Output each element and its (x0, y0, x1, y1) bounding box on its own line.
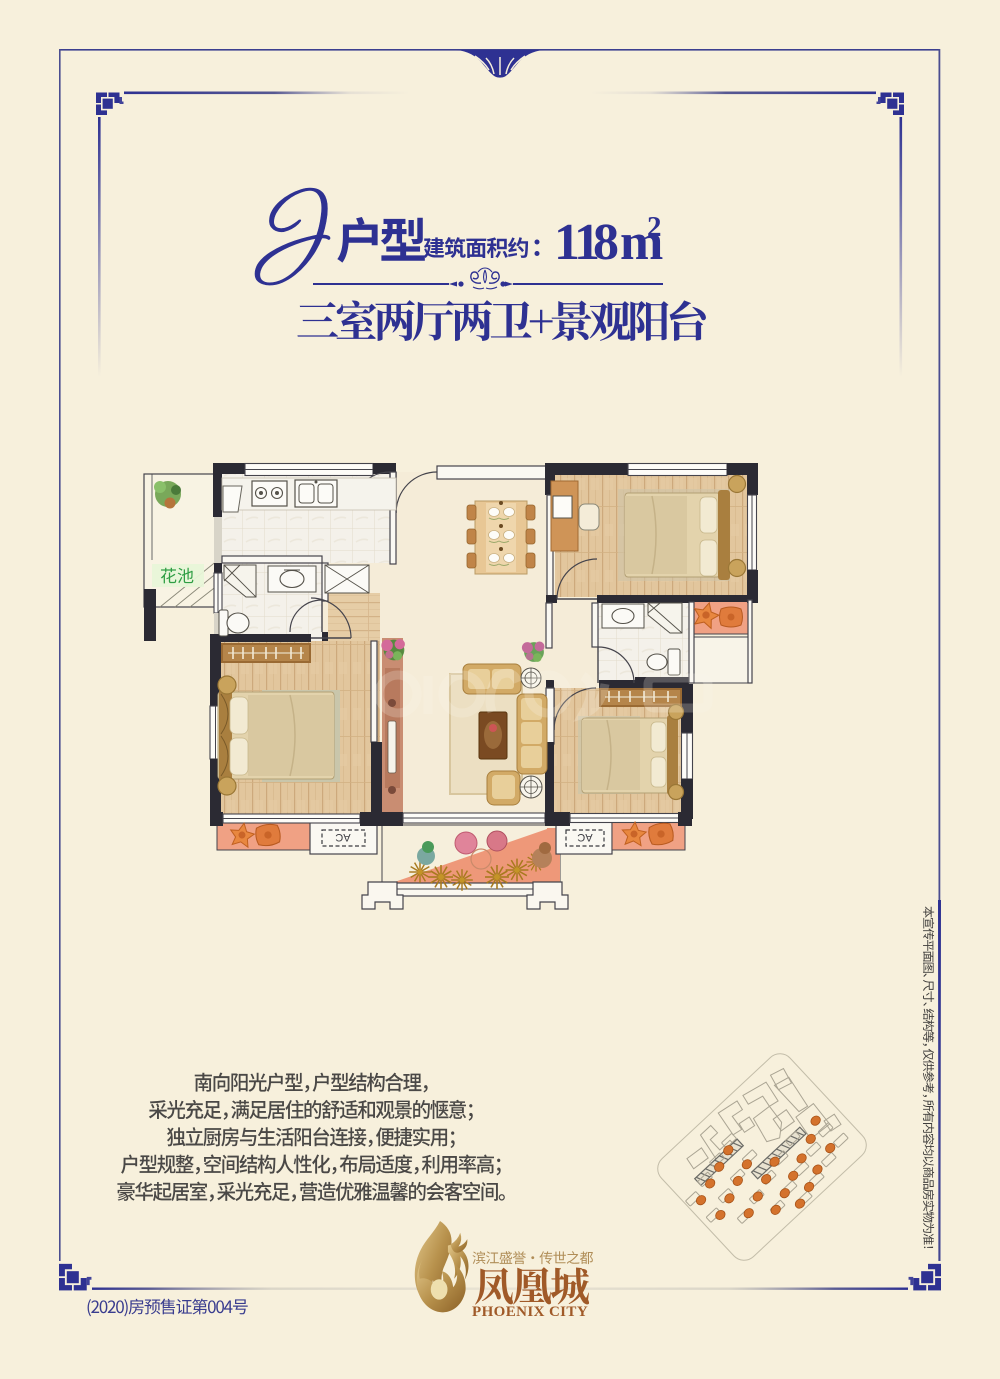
svg-text:AC: AC (335, 831, 350, 843)
svg-text:AC: AC (577, 831, 592, 843)
svg-text:2: 2 (647, 211, 662, 243)
svg-text:PHOENIX CITY: PHOENIX CITY (472, 1304, 588, 1320)
